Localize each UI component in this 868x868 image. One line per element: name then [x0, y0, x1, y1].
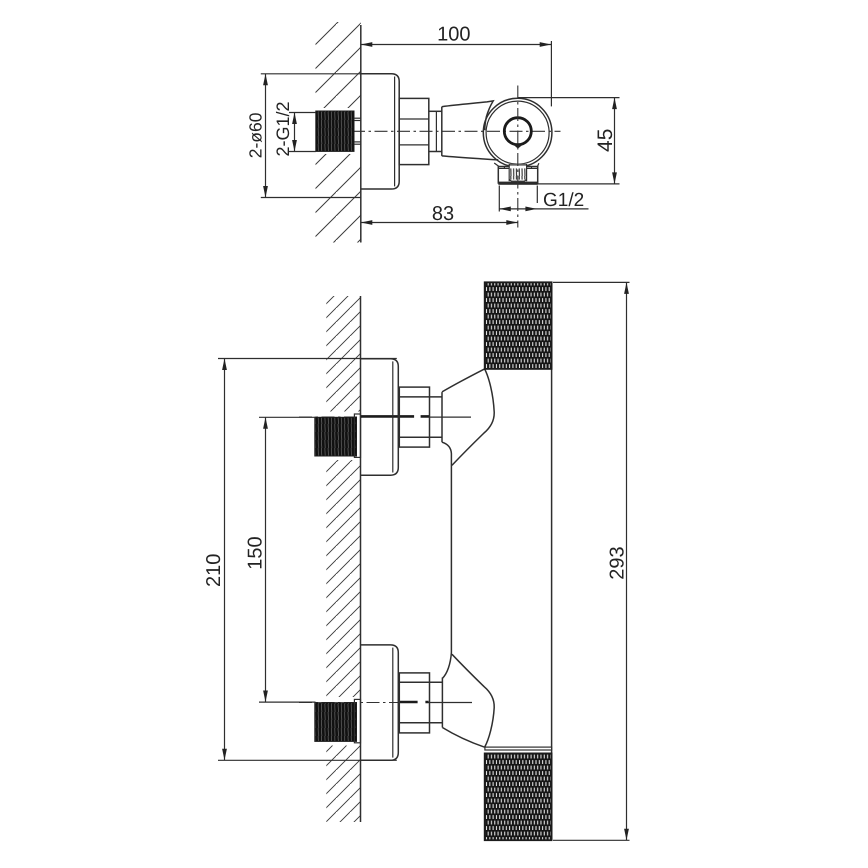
svg-text:G1/2: G1/2: [543, 190, 584, 211]
svg-text:45: 45: [594, 129, 617, 152]
svg-text:83: 83: [432, 203, 454, 225]
svg-text:2-ø60: 2-ø60: [245, 112, 265, 158]
svg-text:150: 150: [244, 536, 266, 569]
svg-text:100: 100: [437, 24, 470, 46]
svg-text:2-G1/2: 2-G1/2: [273, 101, 293, 156]
svg-text:210: 210: [203, 554, 225, 587]
svg-text:293: 293: [606, 546, 628, 579]
